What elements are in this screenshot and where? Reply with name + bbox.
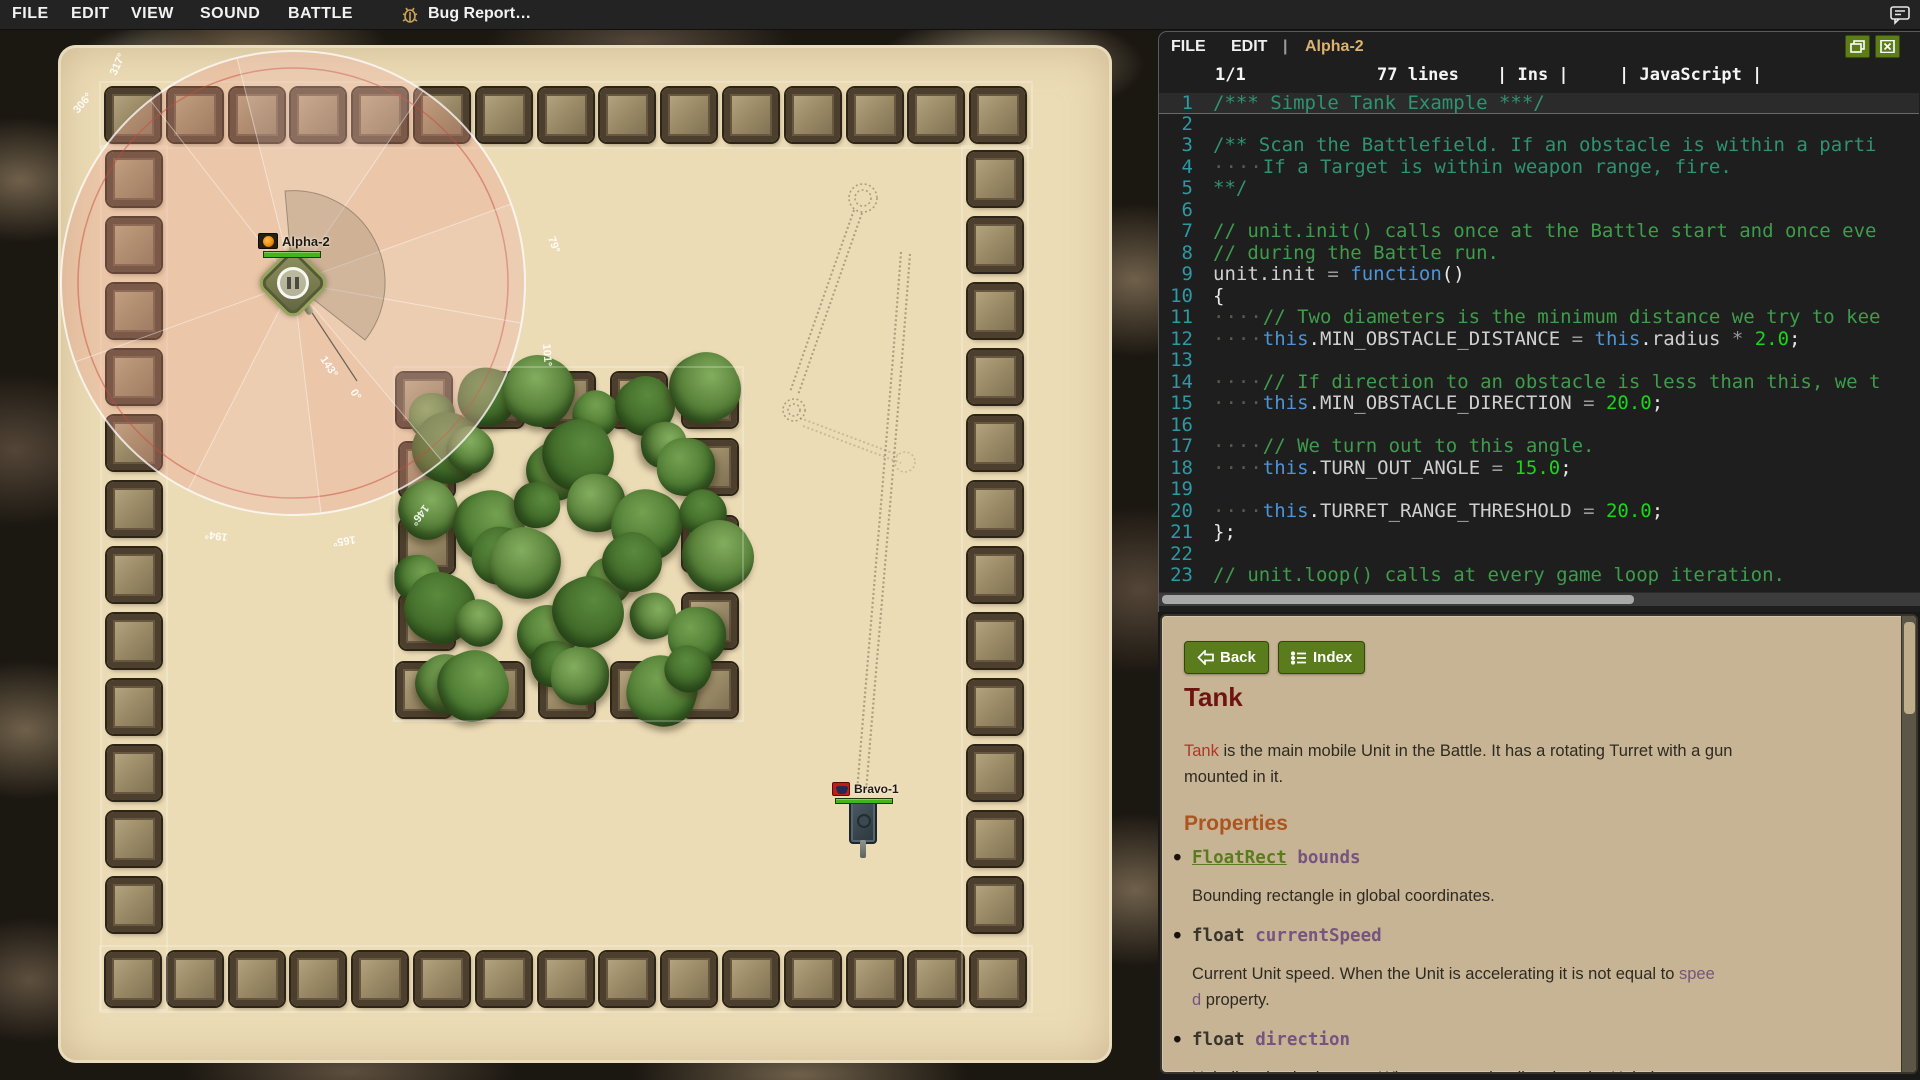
radar-angle-label: 79° [545, 235, 562, 255]
doc-link[interactable]: spee [1679, 965, 1715, 983]
code-editor-panel: | Alpha-2 FILEEDIT 1/1 77 lines | Ins | … [1158, 31, 1920, 612]
menu-item-battle[interactable]: BATTLE [288, 5, 353, 23]
index-button[interactable]: Index [1278, 641, 1365, 674]
language-indicator: | JavaScript | [1619, 65, 1762, 85]
code-line: 20····this.TURRET_RANGE_THRESHOLD = 20.0… [1159, 501, 1919, 523]
doc-text: Bounding rectangle in global coordinates… [1192, 887, 1495, 905]
property-item: FloatRect bounds [1192, 848, 1902, 868]
doc-text: is the main mobile Unit in the Battle. I… [1219, 742, 1733, 760]
team-badge-icon [258, 233, 278, 249]
health-bar-alpha-2 [263, 251, 321, 258]
track-marks [783, 184, 915, 792]
property-name: bounds [1287, 848, 1361, 868]
bug-report-button[interactable]: Bug Report… [428, 5, 531, 23]
code-line: 18····this.TURN_OUT_ANGLE = 15.0; [1159, 458, 1919, 480]
doc-text: Unit direction in degrees. When you set … [1192, 1069, 1708, 1074]
doc-text: mounted in it. [1184, 768, 1283, 786]
property-description: Unit direction in degrees. When you set … [1192, 1065, 1882, 1074]
team-badge-icon [832, 782, 850, 796]
horizontal-scrollbar[interactable] [1159, 592, 1920, 606]
code-line: 14····// If direction to an obstacle is … [1159, 372, 1919, 394]
line-count: 77 lines [1377, 65, 1459, 85]
code-line: 5**/ [1159, 178, 1919, 200]
type-keyword: float [1192, 926, 1245, 946]
doc-link[interactable]: Tank [1184, 742, 1219, 760]
back-button[interactable]: Back [1184, 641, 1269, 674]
code-line: 9unit.init = function() [1159, 264, 1919, 286]
editor-menu-edit[interactable]: EDIT [1231, 38, 1267, 56]
radar-angle-label: 101° [540, 343, 554, 367]
tank-barrel [860, 840, 866, 858]
code-line: 19 [1159, 479, 1919, 501]
menubar: Bug Report… FILEEDITVIEWSOUNDBATTLE [0, 0, 1920, 30]
doc-page-title: Tank [1184, 682, 1243, 713]
code-line: 12····this.MIN_OBSTACLE_DISTANCE = this.… [1159, 329, 1919, 351]
type-keyword: float [1192, 1030, 1245, 1050]
back-label: Back [1220, 649, 1256, 666]
scrollbar-thumb[interactable] [1162, 595, 1634, 604]
tank-turret [857, 814, 871, 828]
code-line: 1/*** Simple Tank Example ***/ [1159, 93, 1919, 114]
code-line: 2 [1159, 114, 1919, 136]
code-line: 21}; [1159, 522, 1919, 544]
code-line: 16 [1159, 415, 1919, 437]
code-line: 11····// Two diameters is the minimum di… [1159, 307, 1919, 329]
tank-alpha-2[interactable] [263, 253, 323, 313]
cursor-position: 1/1 [1215, 65, 1246, 85]
unit-label-alpha-2: Alpha-2 [258, 233, 330, 249]
editor-header: | Alpha-2 FILEEDIT [1159, 32, 1920, 62]
code-line: 6 [1159, 200, 1919, 222]
code-line: 15····this.MIN_OBSTACLE_DIRECTION = 20.0… [1159, 393, 1919, 415]
tank-bravo-1[interactable] [849, 800, 877, 844]
code-line: 13 [1159, 350, 1919, 372]
unit-label-bravo-1: Bravo-1 [832, 782, 899, 796]
radar-angle-label: 165° [332, 533, 356, 548]
code-line: 4····If a Target is within weapon range,… [1159, 157, 1919, 179]
docs-scrollbar[interactable] [1901, 616, 1916, 1074]
property-description: Bounding rectangle in global coordinates… [1192, 883, 1882, 909]
insert-mode: | Ins | [1497, 65, 1569, 85]
menu-item-edit[interactable]: EDIT [71, 5, 109, 23]
separator: | [1283, 38, 1287, 56]
unit-name: Alpha-2 [282, 234, 330, 249]
editor-menu-file[interactable]: FILE [1171, 38, 1206, 56]
battle-map[interactable]: 306°317°79°101°146°165°194°143°0° Alpha-… [0, 30, 1158, 1080]
code-line: 10{ [1159, 286, 1919, 308]
properties-heading: Properties [1184, 812, 1288, 836]
chat-bubble-icon[interactable] [1888, 4, 1912, 26]
code-area[interactable]: 1/*** Simple Tank Example ***/23/** Scan… [1159, 93, 1919, 589]
menu-item-file[interactable]: FILE [12, 5, 49, 23]
radar-angle-label: 306° [71, 91, 95, 116]
property-name: currentSpeed [1245, 926, 1382, 946]
code-line: 3/** Scan the Battlefield. If an obstacl… [1159, 135, 1919, 157]
close-window-button[interactable] [1875, 35, 1900, 58]
index-label: Index [1313, 649, 1352, 666]
code-line: 7// unit.init() calls once at the Battle… [1159, 221, 1919, 243]
doc-text: Current Unit speed. When the Unit is acc… [1192, 965, 1679, 983]
doc-link[interactable]: FloatRect [1192, 848, 1287, 868]
doc-text: property. [1201, 991, 1269, 1009]
menu-item-view[interactable]: VIEW [131, 5, 174, 23]
documentation-panel: Back Index Tank Tank is the main mobile … [1160, 614, 1918, 1074]
radar-overlay: 306°317°79°101°146°165°194°143°0° [0, 30, 1158, 1080]
bug-icon [399, 4, 421, 26]
radar-angle-label: 146° [408, 502, 431, 527]
doc-intro-paragraph: Tank is the main mobile Unit in the Batt… [1184, 738, 1890, 790]
code-line: 17····// We turn out to this angle. [1159, 436, 1919, 458]
restore-window-button[interactable] [1845, 35, 1870, 58]
radar-angle-label: 317° [108, 52, 128, 78]
radar-angle-label: 194° [204, 528, 228, 543]
menu-item-sound[interactable]: SOUND [200, 5, 260, 23]
editor-doc-title: Alpha-2 [1305, 38, 1364, 56]
code-line: 23// unit.loop() calls at every game loo… [1159, 565, 1919, 587]
property-description: Current Unit speed. When the Unit is acc… [1192, 961, 1882, 1013]
pause-indicator-icon [277, 267, 309, 299]
docs-scrollbar-thumb[interactable] [1904, 622, 1915, 714]
properties-list: FloatRect boundsBounding rectangle in gl… [1162, 848, 1902, 1074]
editor-status-bar: 1/1 77 lines | Ins | | JavaScript | [1159, 65, 1920, 89]
app-root: { "menubar": { "items": ["FILE", "EDIT",… [0, 0, 1920, 1080]
unit-name: Bravo-1 [854, 782, 899, 796]
property-item: float direction [1192, 1030, 1902, 1050]
code-line: 22 [1159, 544, 1919, 566]
property-name: direction [1245, 1030, 1350, 1050]
property-item: float currentSpeed [1192, 926, 1902, 946]
code-line: 8// during the Battle run. [1159, 243, 1919, 265]
health-bar-bravo-1 [835, 798, 893, 804]
doc-link[interactable]: d [1192, 991, 1201, 1009]
